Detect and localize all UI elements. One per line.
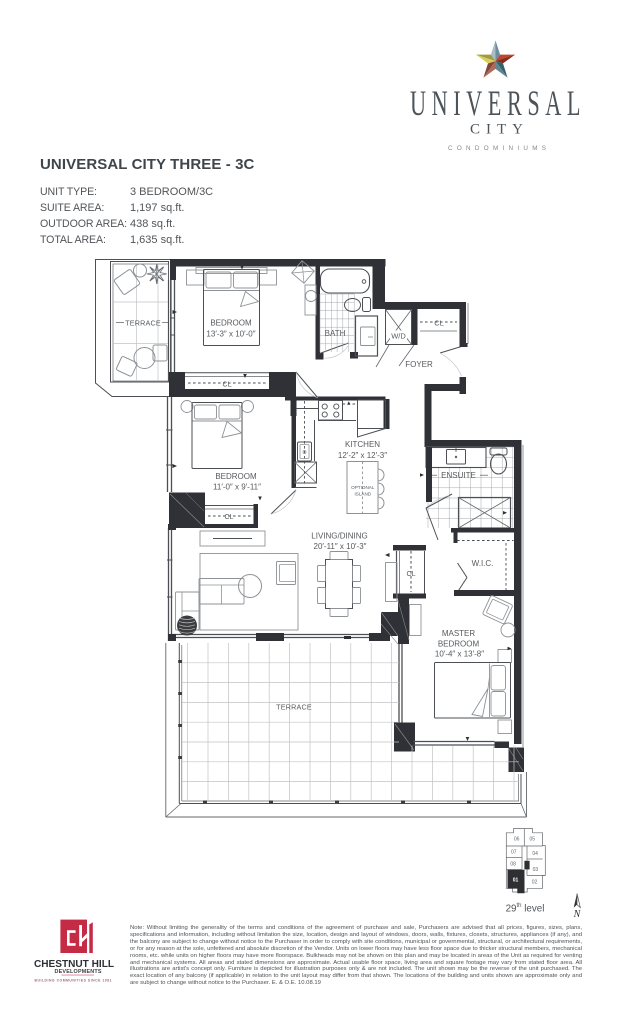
svg-text:TERRACE: TERRACE (276, 703, 312, 712)
svg-text:10′-4″ x 13′-8″: 10′-4″ x 13′-8″ (435, 649, 484, 658)
svg-text:07: 07 (511, 849, 517, 855)
svg-text:DEVELOPMENTS: DEVELOPMENTS (55, 969, 102, 975)
svg-text:TERRACE: TERRACE (125, 319, 161, 328)
svg-text:N: N (573, 909, 582, 920)
svg-text:CL: CL (407, 571, 416, 578)
svg-text:04: 04 (532, 851, 538, 857)
svg-text:OPTIONAL: OPTIONAL (351, 485, 375, 490)
svg-text:CL: CL (225, 514, 234, 521)
svg-text:CONDOMINIUMS: CONDOMINIUMS (448, 145, 546, 152)
svg-text:20′-11″ x 10′-3″: 20′-11″ x 10′-3″ (314, 542, 367, 551)
svg-text:CL: CL (434, 319, 444, 328)
svg-text:BEDROOM: BEDROOM (210, 319, 252, 328)
svg-text:BATH: BATH (325, 329, 346, 338)
svg-text:BEDROOM: BEDROOM (215, 472, 257, 481)
svg-text:BUILDING COMMUNITIES SINCE 198: BUILDING COMMUNITIES SINCE 1981 (35, 979, 112, 983)
svg-text:CITY: CITY (470, 122, 529, 138)
svg-text:MASTER: MASTER (442, 629, 476, 638)
svg-text:02: 02 (532, 879, 538, 885)
svg-text:ISLAND: ISLAND (354, 492, 371, 497)
svg-text:FOYER: FOYER (405, 360, 433, 369)
svg-text:ENSUITE: ENSUITE (441, 471, 476, 480)
svg-text:12′-2″ x 12′-3″: 12′-2″ x 12′-3″ (338, 451, 387, 460)
svg-text:LIVING/DINING: LIVING/DINING (311, 532, 367, 541)
svg-text:BEDROOM: BEDROOM (438, 639, 480, 648)
svg-text:01: 01 (513, 878, 519, 884)
svg-text:KITCHEN: KITCHEN (345, 440, 380, 449)
svg-text:W/D: W/D (391, 332, 406, 341)
svg-text:CL: CL (223, 382, 232, 389)
svg-text:05: 05 (530, 837, 536, 843)
svg-text:W.I.C.: W.I.C. (472, 559, 494, 568)
svg-text:UNIVERSAL: UNIVERSAL (410, 83, 586, 123)
svg-text:08: 08 (510, 862, 516, 868)
svg-text:06: 06 (514, 837, 520, 843)
svg-text:11′-0″ x 9′-11″: 11′-0″ x 9′-11″ (213, 483, 261, 492)
svg-text:03: 03 (533, 867, 539, 873)
svg-text:13′-3″ x 10′-0″: 13′-3″ x 10′-0″ (206, 330, 255, 339)
